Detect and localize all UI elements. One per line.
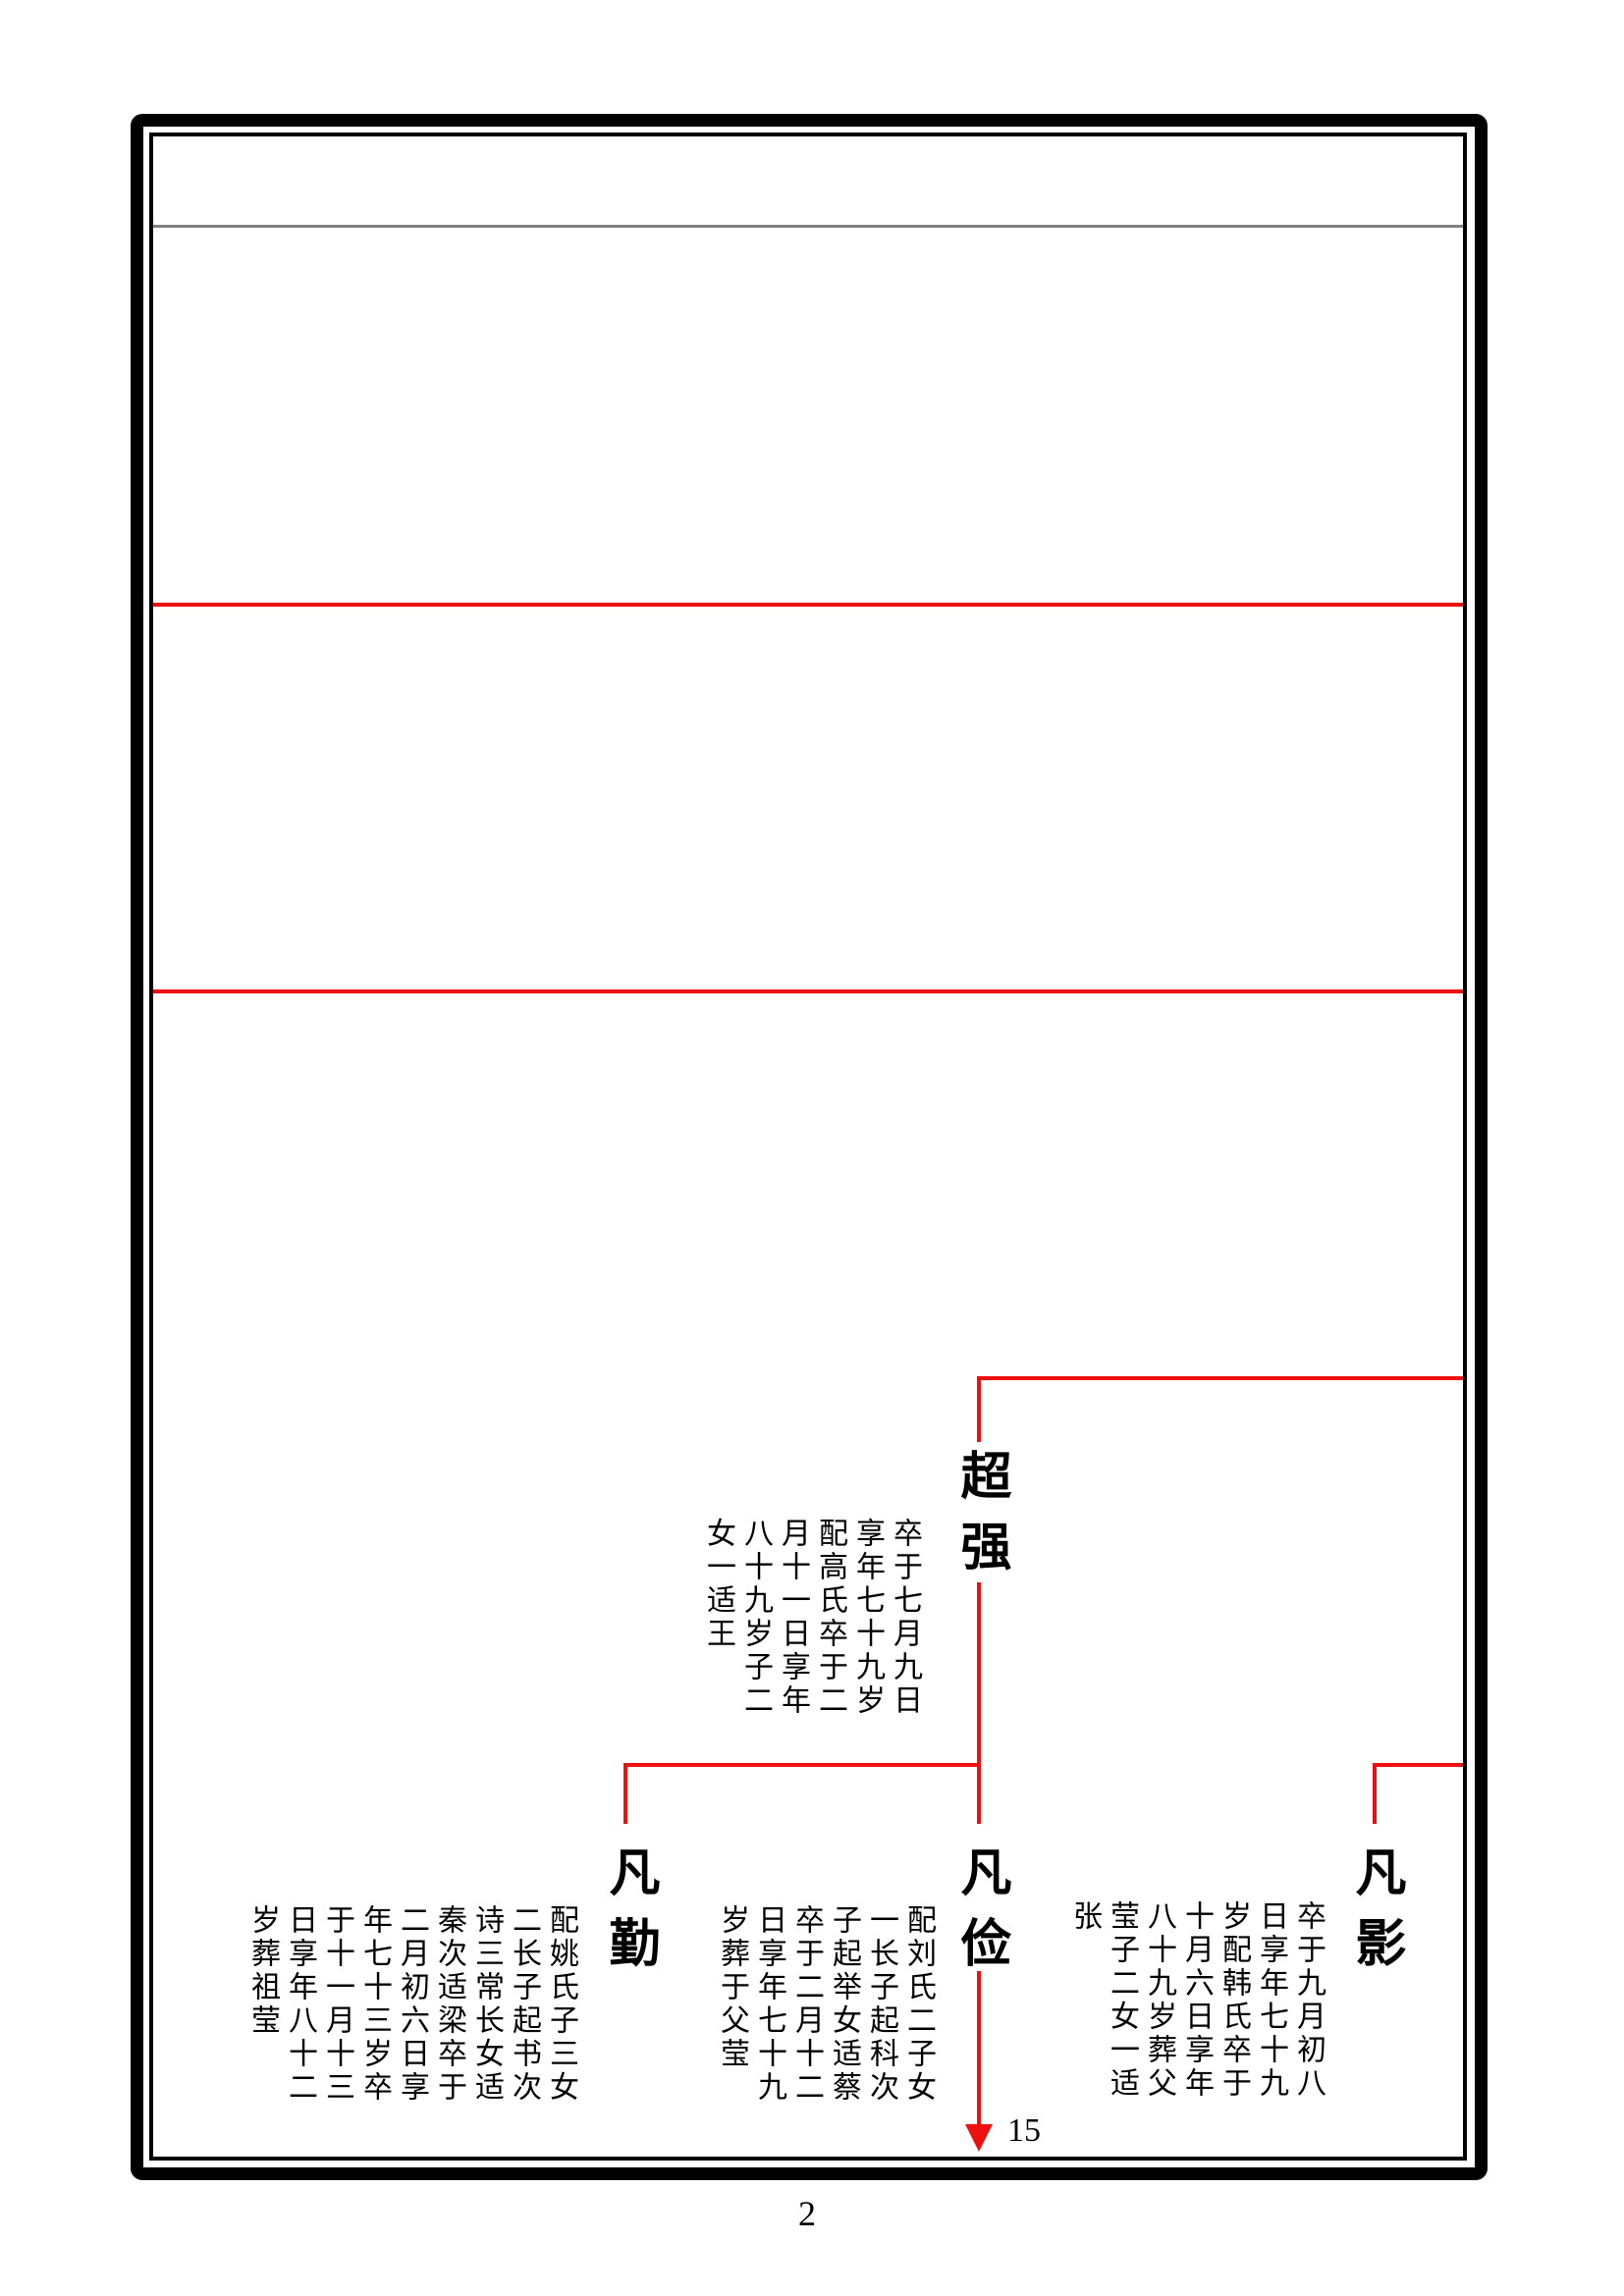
continuation-page-number: 15 [1007,2112,1041,2150]
person-bio-fanying: 卒于九月初八日享年七十九岁配韩氏卒于十月六日享年八十九岁葬父莹子二女一适张 [1065,1900,1326,2102]
connector-fanying-horizontal [1373,1763,1463,1767]
connector-stub-fanying [1373,1763,1377,1824]
generation-divider-1 [153,603,1463,607]
continuation-arrow-head-icon [965,2124,993,2152]
header-rule [153,225,1463,228]
connector-parent-drop [977,1376,981,1442]
person-bio-fanqin: 配姚氏子三女二长子起书次诗三常长女适秦次适梁卒于二月初六日享年七十三岁卒于十一月… [244,1904,579,2106]
person-name-fanqin: 凡勤 [601,1845,656,2002]
person-bio-chaoqiang: 卒于七月九日享年七十九岁配高氏卒于二月十一日享年八十九岁子二女一适王 [699,1518,923,1719]
person-name-fanying: 凡影 [1347,1845,1402,2002]
page-border-inner [149,133,1467,2161]
page-number: 2 [768,2193,846,2234]
connector-parent-horizontal [977,1376,1463,1380]
person-bio-fanjian: 配刘氏二子女一长子起科次子起举女适蔡卒于二月十二日享年七十九岁葬于父莹 [713,1904,937,2106]
generation-divider-2 [153,989,1463,993]
connector-stub-fanqin [623,1763,627,1824]
connector-children-bracket [623,1763,981,1767]
genealogy-page: 超强 卒于七月九日享年七十九岁配高氏卒于二月十一日享年八十九岁子二女一适王 凡勤… [0,0,1624,2296]
connector-descent-line [977,1582,981,1824]
continuation-arrow-shaft [977,1971,981,2128]
